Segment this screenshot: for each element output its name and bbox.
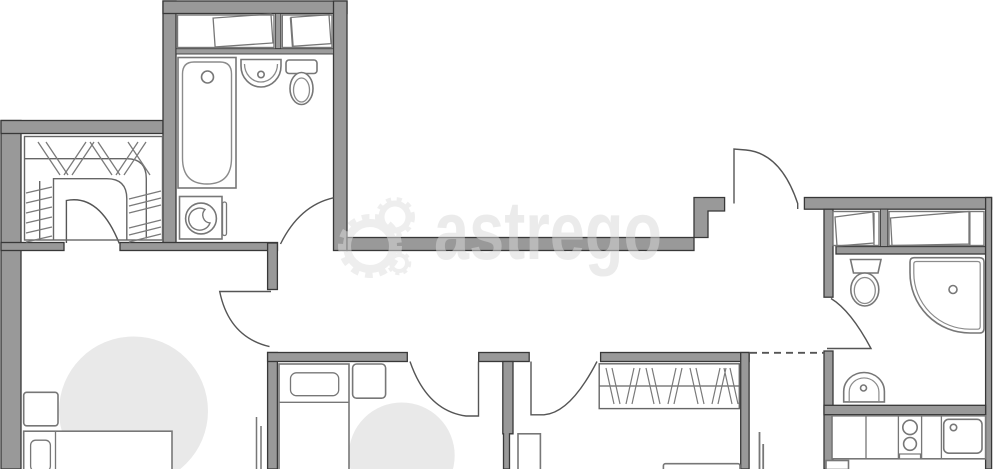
svg-text:astrego: astrego (434, 184, 662, 277)
